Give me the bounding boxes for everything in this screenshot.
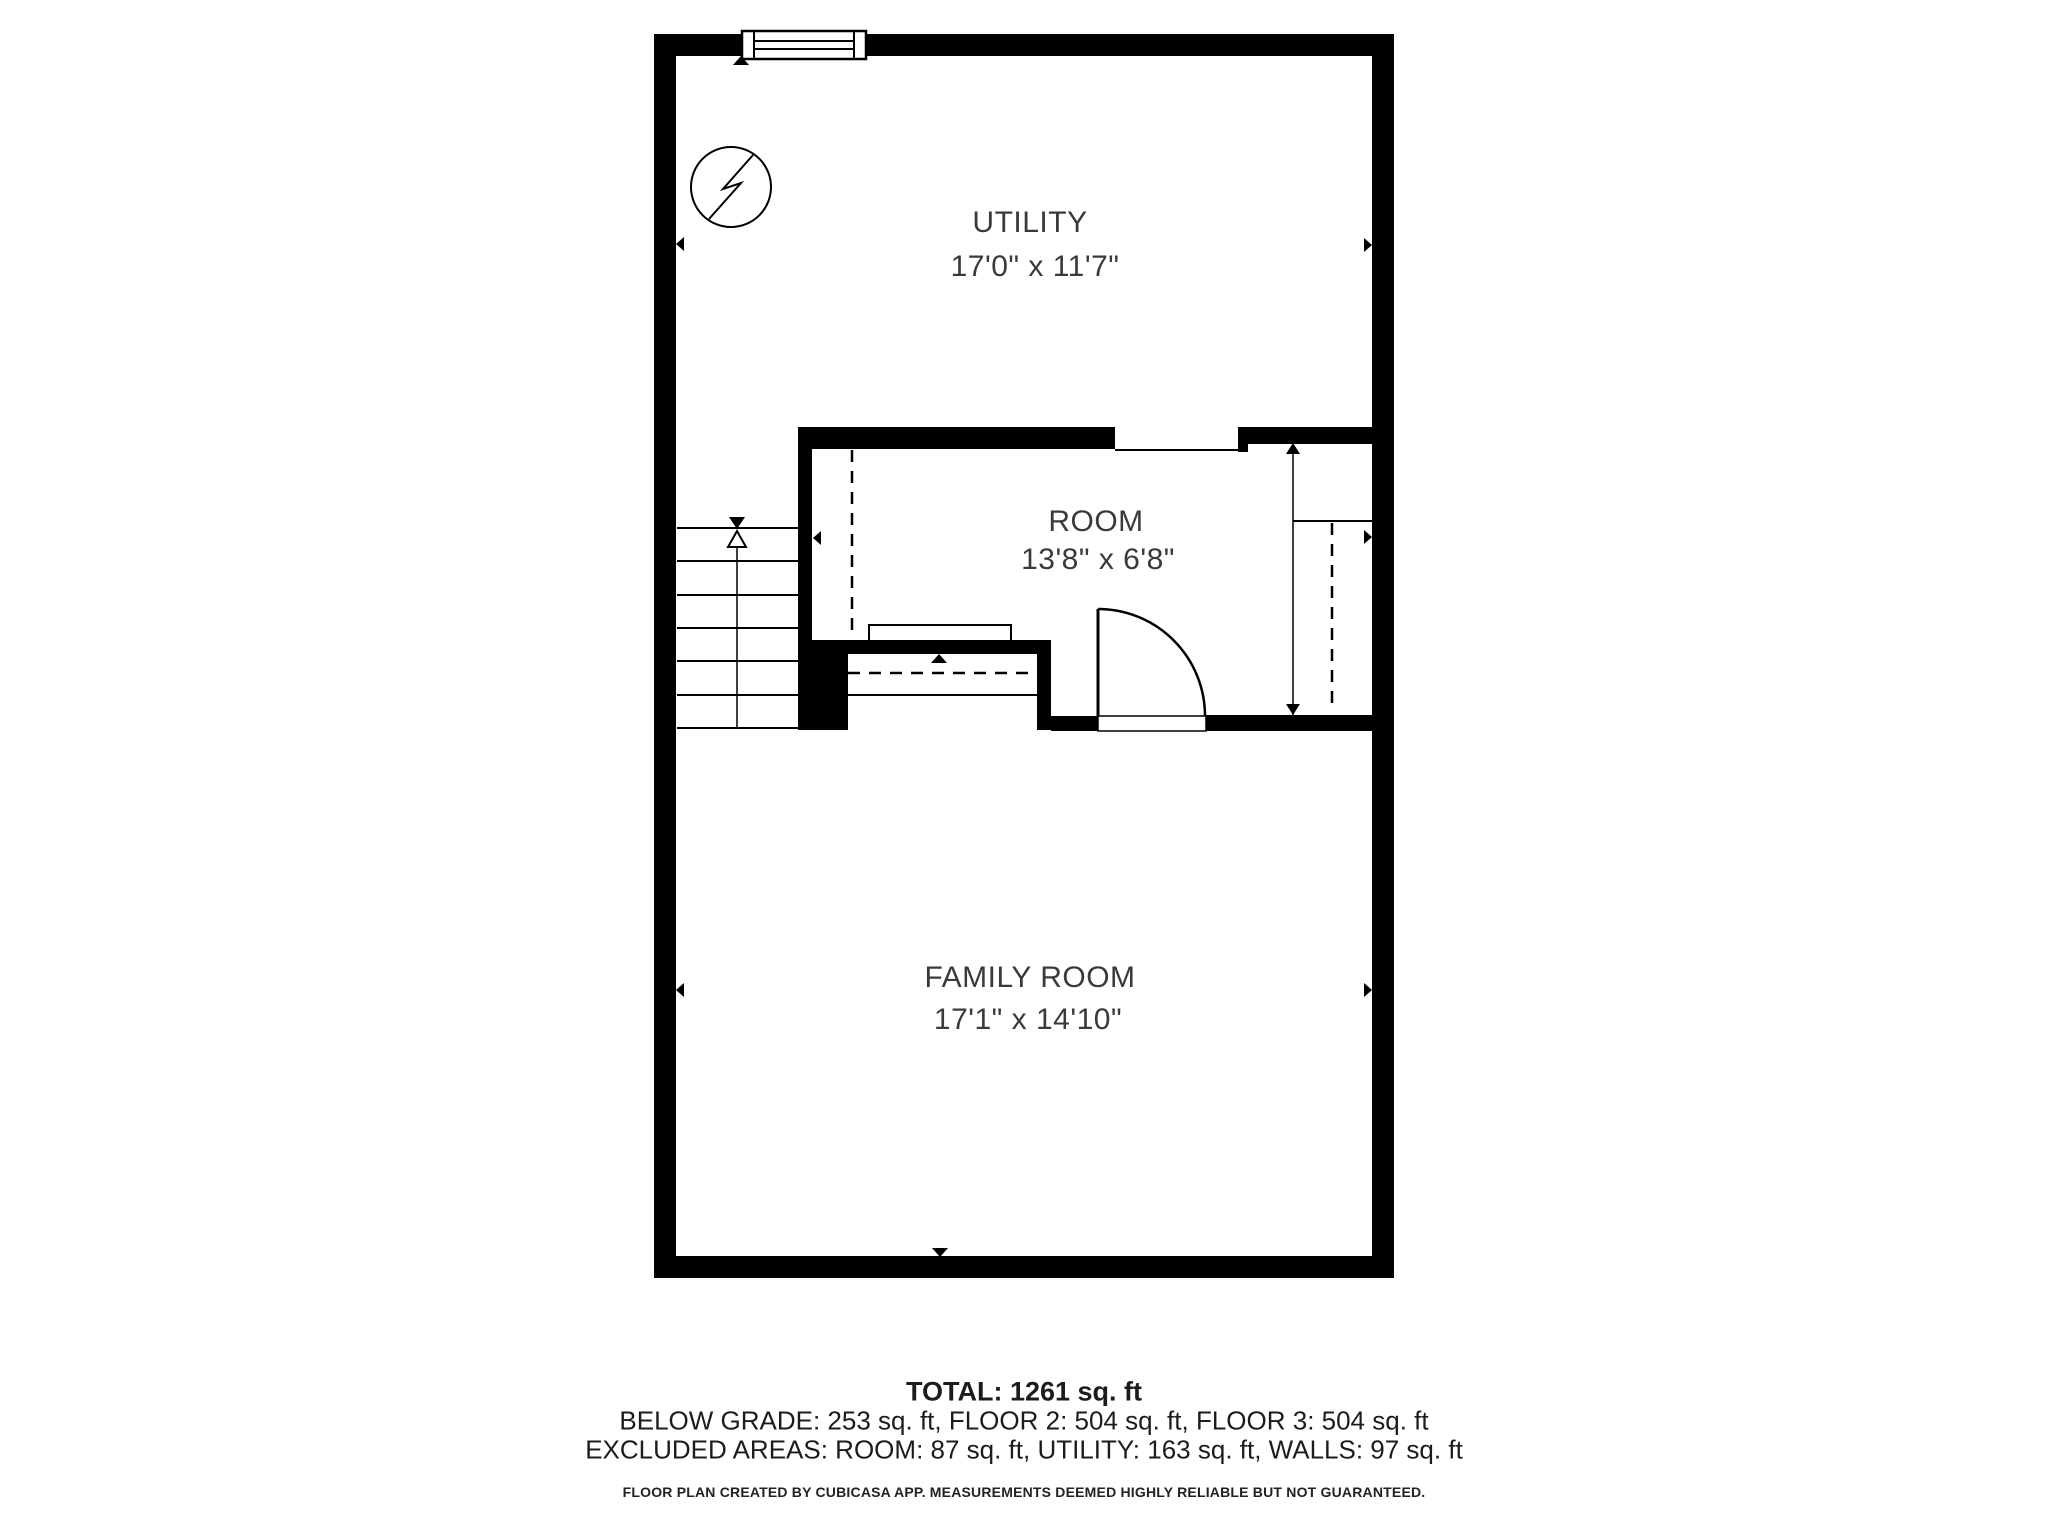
excluded-areas-text: EXCLUDED AREAS: ROOM: 87 sq. ft, UTILITY… [585,1435,1463,1466]
electrical-panel-icon [691,147,771,227]
wall-left [654,34,676,1278]
wall-bottom [654,1256,1394,1278]
floor-breakdown-text: BELOW GRADE: 253 sq. ft, FLOOR 2: 504 sq… [619,1406,1428,1437]
family-height-arrow-bottom-icon [932,1248,948,1257]
interior-walls [798,427,1372,731]
closet-dimension-arrow-bottom-icon [1286,704,1300,715]
room-bottom-wall [812,640,1051,654]
window-symbol [742,31,866,59]
utility-room-dimensions: 17'0" x 11'7" [951,250,1120,284]
disclaimer-text: FLOOR PLAN CREATED BY CUBICASA APP. MEAS… [623,1484,1426,1500]
utility-width-arrow-left-icon [676,237,684,251]
floor-plan-canvas: UTILITY 17'0" x 11'7" ROOM 13'8" x 6'8" … [0,0,2048,1536]
door-threshold [1098,716,1206,731]
total-area-text: TOTAL: 1261 sq. ft [906,1377,1142,1408]
closet-top-wall [1238,427,1372,444]
corridor-arrow-up-icon [931,654,947,663]
room-top-wall [798,427,1115,449]
family-room-label: FAMILY ROOM [924,961,1135,995]
family-width-arrow-left-icon [676,983,684,997]
utility-room-label: UTILITY [972,206,1087,240]
door-symbol [1098,609,1206,731]
reference-lines [848,443,1372,715]
window-frame [742,31,866,59]
utility-width-arrow-right-icon [1364,238,1372,252]
room-width-arrow-left-icon [813,531,821,545]
family-width-arrow-right-icon [1364,983,1372,997]
corridor-right-wall-jog [1037,640,1051,730]
door-swing-arc [1098,609,1205,716]
wall-right [1372,34,1394,1278]
cased-opening-symbol [869,625,1011,641]
closet-top-wall-jamb [1238,444,1248,452]
closet-dimension-arrow-top-icon [1286,443,1300,454]
room-label: ROOM [1048,505,1143,539]
family-room-dimensions: 17'1" x 14'10" [934,1003,1122,1037]
stair-arrow-outline-triangle [728,531,746,547]
stairs-symbol [677,517,798,728]
door-right-wall [1206,715,1372,731]
door-left-wall [1051,716,1098,731]
closet-arrow-right-icon [1364,530,1372,544]
room-left-wall [798,427,812,640]
room-dimensions: 13'8" x 6'8" [1021,543,1175,577]
